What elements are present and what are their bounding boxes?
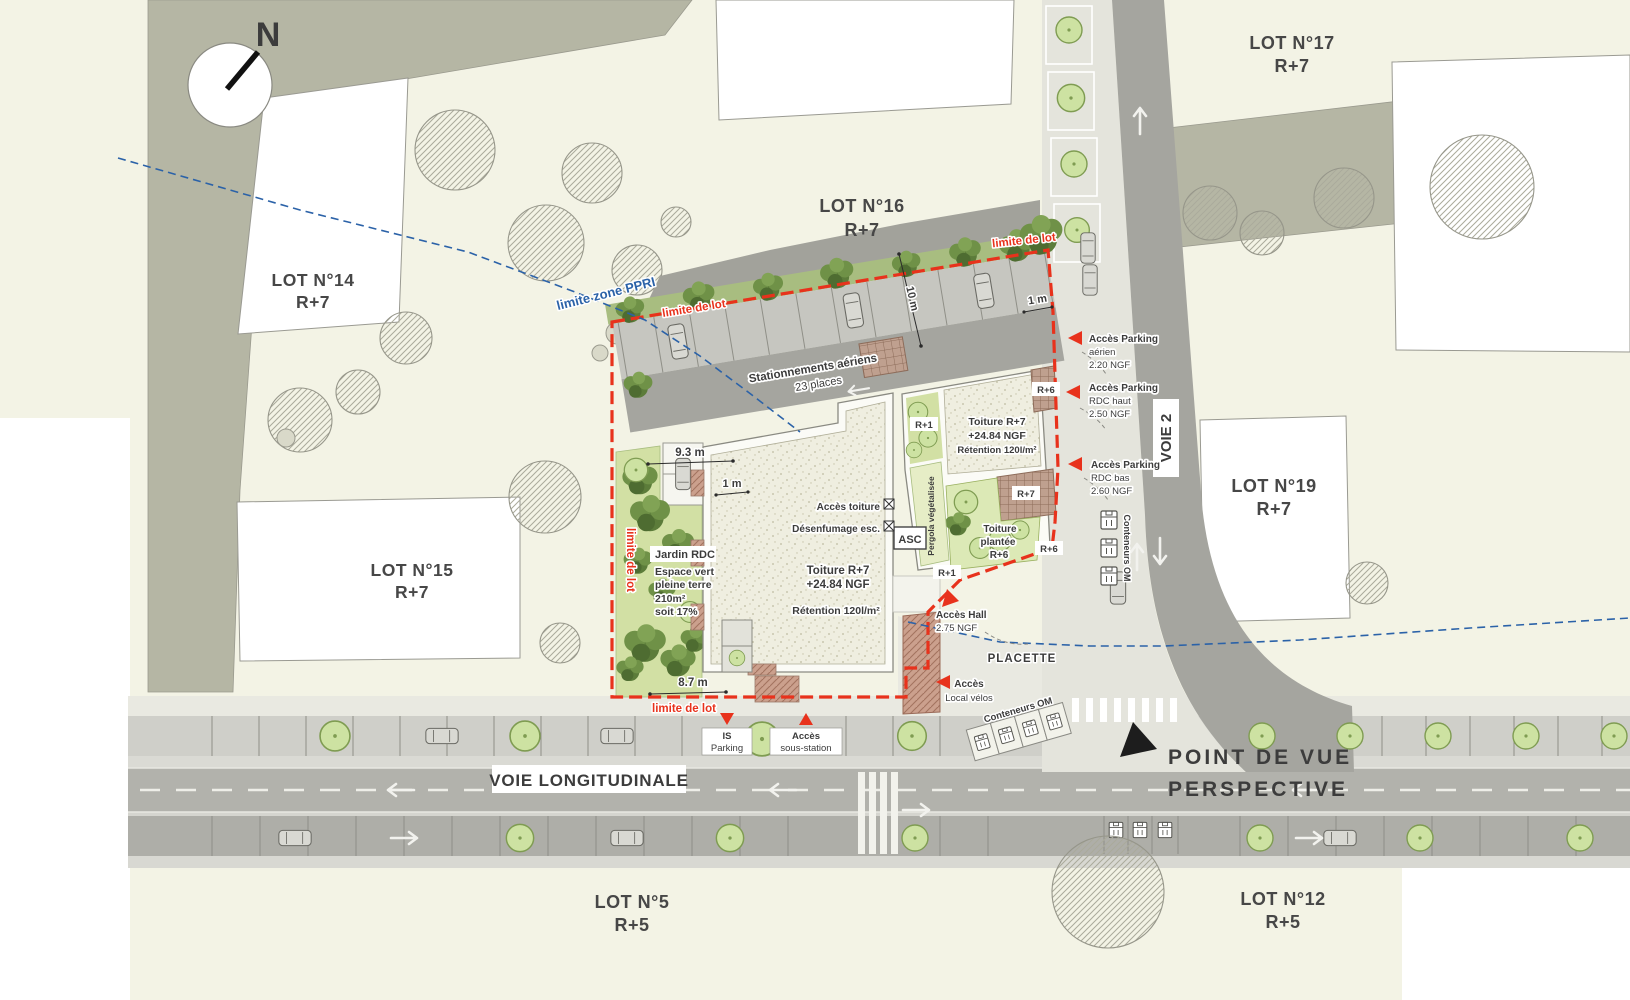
garden-l2: Espace vert: [655, 566, 714, 578]
lot14-floors: R+7: [296, 292, 330, 312]
car-icon: [1081, 233, 1095, 263]
voie-longitudinale-road: [128, 696, 1630, 868]
pergola-label: Pergola végétalisée: [926, 476, 936, 556]
masterplan-drawing: N LOT N°14 R+7 LOT N°15 R+7 LOT N°16 R+7…: [0, 0, 1630, 1000]
lot16-label: LOT N°16: [819, 196, 904, 216]
placette-label: PLACETTE: [988, 653, 1057, 665]
waste-bin-icon: [1158, 822, 1172, 837]
conteneurs-voie2: [1101, 511, 1117, 585]
roof-east-l3: Rétention 120l/m²: [957, 445, 1036, 456]
lot17-floors: R+7: [1274, 56, 1309, 76]
lot12-label: LOT N°12: [1240, 889, 1325, 909]
dim-8-7: 8.7 m: [678, 677, 707, 689]
checkbox-icon: [884, 521, 894, 531]
roof-main-l2: +24.84 NGF: [807, 579, 870, 591]
lot5-label: LOT N°5: [595, 892, 670, 912]
is-parking-l2: Parking: [711, 743, 743, 754]
desenfumage-label: Désenfumage esc.: [792, 524, 880, 535]
roof-main-l1: Toiture R+7: [807, 565, 870, 577]
limite-lot-west: limite de lot: [624, 528, 636, 592]
site-plan-svg: N LOT N°14 R+7 LOT N°15 R+7 LOT N°16 R+7…: [0, 0, 1630, 1000]
lot16-floors: R+7: [844, 220, 879, 240]
acces-rdchaut-l3: 2.50 NGF: [1089, 409, 1130, 420]
voie-longitudinale-label: VOIE LONGITUDINALE: [489, 771, 689, 790]
green-roof-l2: plantée: [980, 537, 1015, 548]
garden-l5: soit 17%: [655, 606, 698, 618]
lot15-floors: R+7: [395, 582, 429, 602]
acces-hall-l2: 2.75 NGF: [936, 623, 977, 634]
car-icon: [1083, 265, 1097, 295]
roof-east-l2: +24.84 NGF: [968, 430, 1026, 442]
roof-east-label: Toiture R+7 +24.84 NGF Rétention 120l/m²: [957, 416, 1036, 456]
lot19-building: [1200, 416, 1350, 622]
garden-l3: pleine terre: [655, 579, 712, 591]
checkbox-icon: [884, 499, 894, 509]
green-roof-l3: R+6: [990, 550, 1009, 561]
north-label: N: [256, 16, 281, 54]
lot15-label: LOT N°15: [371, 560, 454, 580]
waste-bin-icon: [1133, 822, 1147, 837]
level-r6b: R+6: [1040, 544, 1058, 555]
lot12-floors: R+5: [1265, 912, 1300, 932]
viewpoint-line2: PERSPECTIVE: [1168, 778, 1348, 801]
lot16-building: [716, 0, 1014, 120]
dim-9-3: 9.3 m: [675, 447, 704, 459]
acces-velos-l2: Local vélos: [945, 693, 993, 704]
level-r1a: R+1: [915, 420, 933, 431]
roof-main-l3: Rétention 120l/m²: [792, 605, 880, 617]
green-roof-l1: Toiture: [983, 524, 1017, 535]
acces-rdcbas-l3: 2.60 NGF: [1091, 486, 1132, 497]
acces-velos-l1: Accès: [954, 679, 984, 690]
lot19-floors: R+7: [1256, 499, 1291, 519]
acces-aerien-l2: aérien: [1089, 347, 1115, 358]
is-parking-l1: IS: [723, 731, 732, 742]
garden-l1: Jardin RDC: [655, 549, 715, 561]
limite-lot-bottom: limite de lot: [652, 703, 716, 715]
viewpoint-line1: POINT DE VUE: [1168, 746, 1352, 769]
lot17-label: LOT N°17: [1249, 33, 1334, 53]
asc-label: ASC: [898, 534, 921, 546]
acces-hall-l1: Accès Hall: [936, 610, 987, 621]
acces-aerien-l3: 2.20 NGF: [1089, 360, 1130, 371]
sous-station-l1: Accès: [792, 731, 820, 742]
lot14-label: LOT N°14: [272, 270, 355, 290]
acces-rdcbas-l1: Accès Parking: [1091, 460, 1160, 471]
voie-2-label: VOIE 2: [1158, 414, 1175, 462]
lot5-floors: R+5: [614, 915, 649, 935]
lot19-label: LOT N°19: [1231, 476, 1316, 496]
garden-l4: 210m²: [655, 593, 686, 605]
hatched-tree: [1052, 836, 1164, 948]
waste-bin-icon: [1109, 822, 1123, 837]
sous-station-l2: sous-station: [780, 743, 831, 754]
level-r6a: R+6: [1037, 385, 1055, 396]
acces-rdchaut-l1: Accès Parking: [1089, 383, 1158, 394]
acces-rdchaut-l2: RDC haut: [1089, 396, 1131, 407]
acces-rdcbas-l2: RDC bas: [1091, 473, 1130, 484]
dim-1-west: 1 m: [723, 478, 742, 490]
conteneurs-voie-label: Conteneurs OM: [1122, 514, 1132, 581]
level-r7a: R+7: [1017, 489, 1035, 500]
roof-east-l1: Toiture R+7: [968, 416, 1025, 428]
road-access-labels: IS Parking Accès sous-station: [702, 728, 842, 755]
acces-toiture-label: Accès toiture: [817, 502, 881, 513]
level-r1b: R+1: [938, 568, 956, 579]
acces-aerien-l1: Accès Parking: [1089, 334, 1158, 345]
